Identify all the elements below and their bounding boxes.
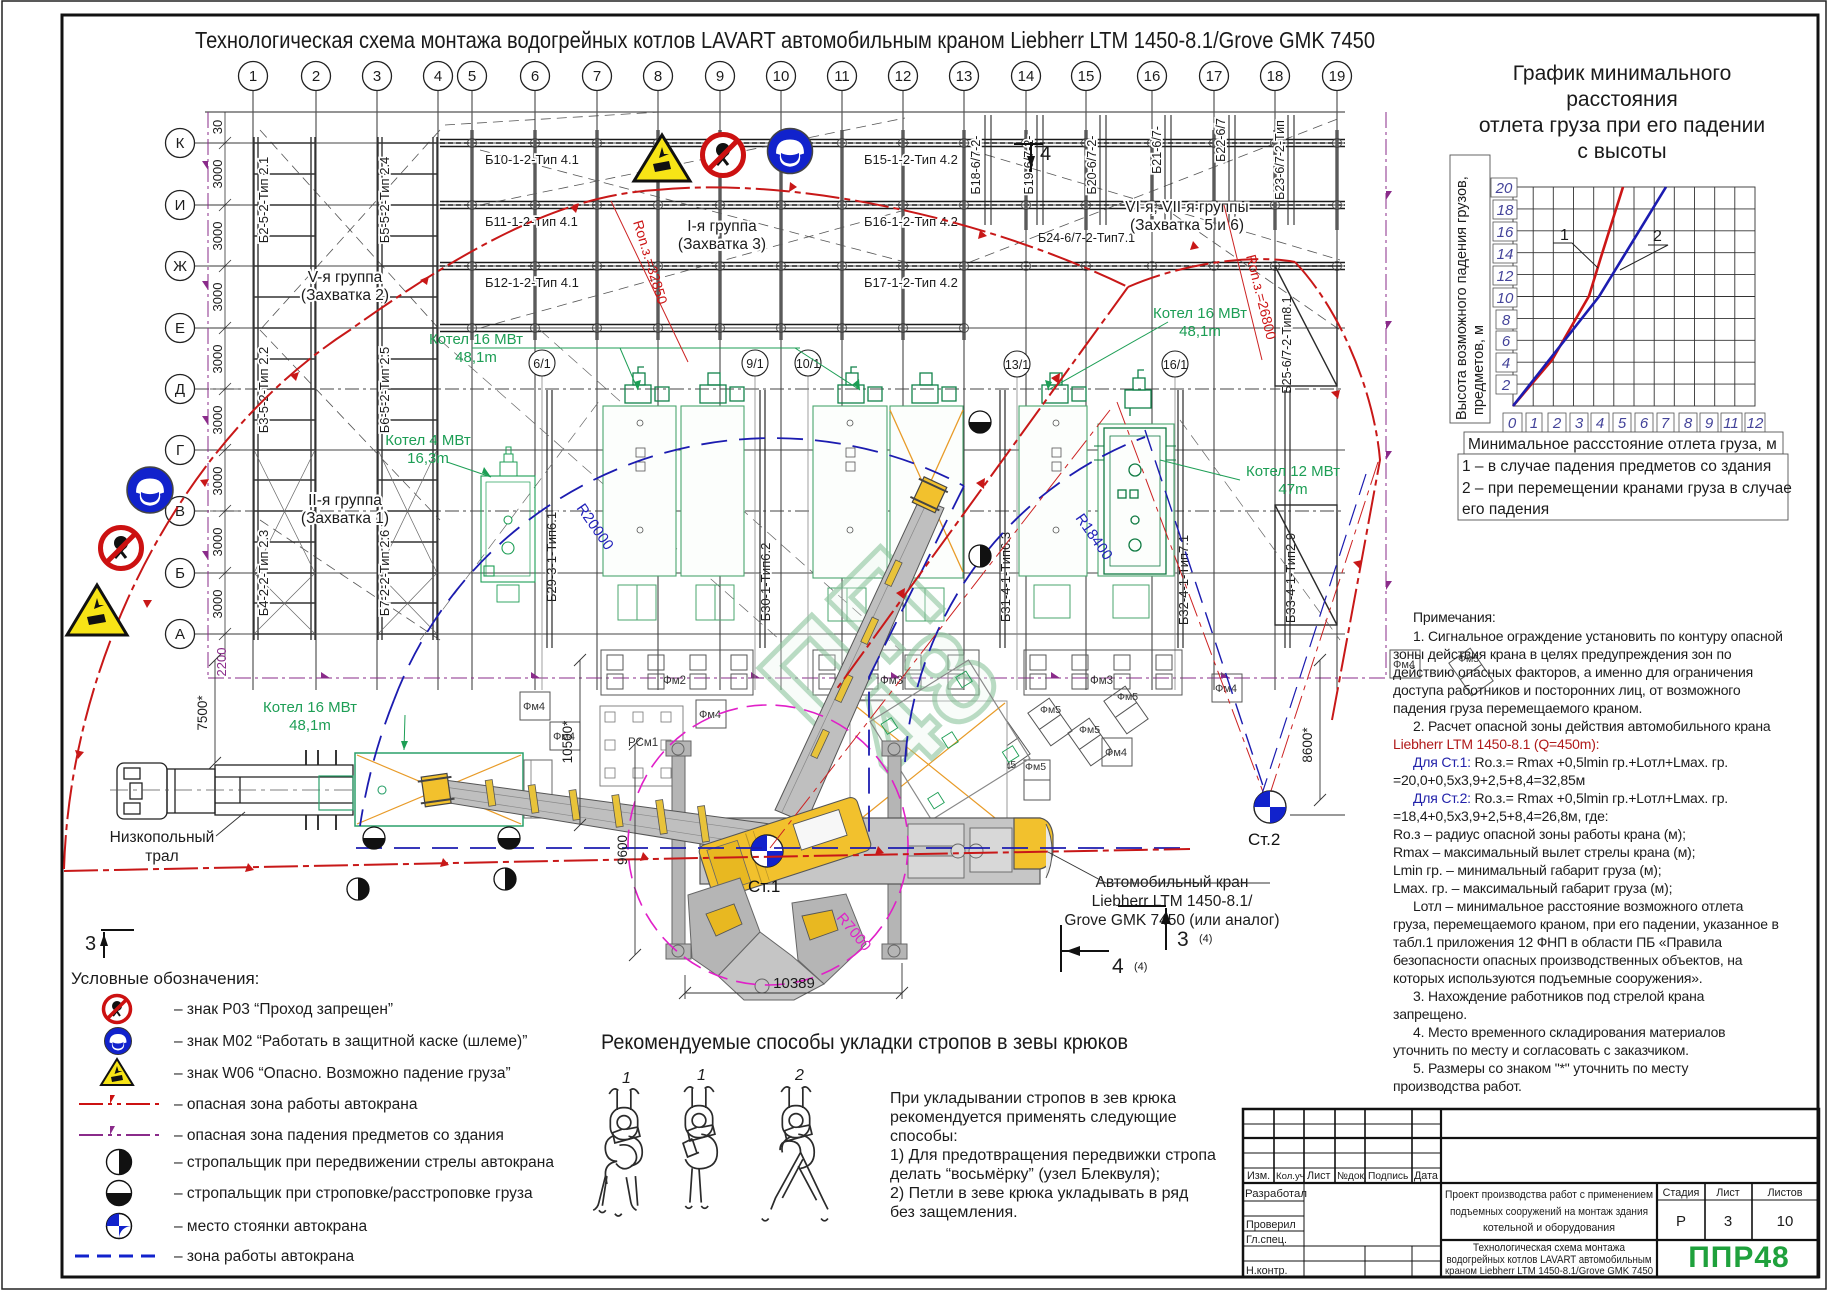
svg-text:Е: Е: [175, 320, 185, 337]
svg-text:Фм4: Фм4: [699, 709, 721, 721]
svg-text:Подпись: Подпись: [1368, 1171, 1408, 1182]
svg-text:2: 2: [312, 68, 320, 85]
svg-text:(Захватка 2): (Захватка 2): [301, 287, 389, 304]
svg-text:8: 8: [1684, 415, 1693, 432]
svg-text:10: 10: [1497, 290, 1514, 307]
svg-text:9: 9: [716, 68, 724, 85]
svg-text:11: 11: [834, 68, 850, 85]
svg-text:3000: 3000: [210, 222, 225, 251]
svg-text:производства работ.: производства работ.: [1393, 1078, 1522, 1094]
svg-text:Фм4: Фм4: [523, 701, 545, 713]
svg-text:3000: 3000: [210, 467, 225, 496]
svg-text:Р: Р: [1676, 1213, 1686, 1230]
svg-text:Б24-6/7-2-Тип7.1: Б24-6/7-2-Тип7.1: [1038, 231, 1135, 245]
svg-text:=20,0+0,5x3,9+2,5+8,4=32,85м: =20,0+0,5x3,9+2,5+8,4=32,85м: [1393, 772, 1585, 788]
svg-text:– зона работы автокрана: – зона работы автокрана: [174, 1248, 355, 1265]
svg-text:4: 4: [1596, 415, 1604, 432]
svg-text:II-я группа: II-я группа: [308, 492, 382, 509]
svg-text:10500*: 10500*: [560, 720, 575, 764]
svg-text:зоны действия крана в целях пр: зоны действия крана в целях предупрежден…: [1393, 646, 1732, 662]
svg-text:Liebherr LTM 1450-8.1 (Q=450m): Liebherr LTM 1450-8.1 (Q=450m):: [1393, 736, 1599, 752]
svg-text:Стадия: Стадия: [1663, 1187, 1700, 1199]
svg-text:2: 2: [1552, 415, 1562, 432]
svg-text:3: 3: [1177, 928, 1189, 951]
svg-text:(4): (4): [1199, 933, 1212, 945]
svg-text:Lмах. гр. – максимальный габар: Lмах. гр. – максимальный габарит груза (…: [1393, 880, 1672, 896]
svg-text:2200: 2200: [214, 648, 229, 677]
svg-text:14: 14: [1497, 246, 1514, 263]
svg-text:9: 9: [1705, 415, 1714, 432]
svg-text:Дата: Дата: [1414, 1170, 1438, 1182]
svg-text:8600*: 8600*: [1300, 727, 1315, 763]
svg-text:=18,4+0,5x3,9+2,5+8,4=26,8м, г: =18,4+0,5x3,9+2,5+8,4=26,8м, где:: [1393, 808, 1608, 824]
svg-text:0: 0: [1508, 415, 1517, 432]
svg-text:падения груза перемещаемого кр: падения груза перемещаемого краном.: [1393, 700, 1642, 716]
svg-text:Б23-6/7-2-Тип: Б23-6/7-2-Тип: [1273, 120, 1287, 200]
svg-text:VI-я, VII-я группы: VI-я, VII-я группы: [1125, 199, 1248, 216]
svg-text:3000: 3000: [210, 345, 225, 374]
svg-text:30: 30: [210, 120, 225, 134]
svg-text:4: 4: [1040, 143, 1051, 165]
svg-text:Фм5: Фм5: [1040, 704, 1061, 716]
svg-text:При укладывании стропов в зев: При укладывании стропов в зев крюка: [890, 1090, 1176, 1107]
svg-text:3: 3: [1724, 1213, 1732, 1230]
svg-text:Б25-6/7-2-Тип8.1: Б25-6/7-2-Тип8.1: [1280, 296, 1294, 393]
svg-text:10389: 10389: [773, 975, 815, 992]
svg-text:Б12-1-2-Тип 4.1: Б12-1-2-Тип 4.1: [485, 275, 579, 290]
svg-text:Н.контр.: Н.контр.: [1246, 1265, 1288, 1277]
svg-text:В: В: [175, 503, 185, 520]
svg-text:безопасности опасных производс: безопасности опасных производственных об…: [1393, 952, 1743, 968]
svg-text:Лист: Лист: [1307, 1170, 1331, 1182]
svg-text:6: 6: [1640, 415, 1649, 432]
svg-text:16: 16: [1144, 68, 1161, 85]
svg-text:Гл.спец.: Гл.спец.: [1246, 1234, 1287, 1246]
svg-text:2: 2: [1501, 377, 1511, 394]
svg-text:48,1m: 48,1m: [455, 349, 497, 366]
svg-text:12: 12: [1497, 268, 1514, 285]
svg-text:А: А: [175, 626, 185, 643]
svg-text:10/1: 10/1: [796, 357, 820, 371]
svg-text:табл.1 приложения 12 ФНП в обл: табл.1 приложения 12 ФНП в области ПБ «П…: [1393, 934, 1722, 950]
svg-text:16: 16: [1497, 224, 1514, 241]
svg-text:1: 1: [697, 1067, 706, 1084]
svg-text:К: К: [176, 135, 185, 152]
svg-text:1) Для предотвращения передвиж: 1) Для предотвращения передвижки стропа: [890, 1147, 1216, 1164]
svg-text:V-я группа: V-я группа: [308, 269, 383, 286]
svg-text:способы:: способы:: [890, 1128, 958, 1145]
svg-text:2: 2: [794, 1067, 804, 1084]
svg-text:которых используются подъемные: которых используются подъемные сооружени…: [1393, 970, 1703, 986]
svg-text:подъемных сооружений на монтаж: подъемных сооружений на монтаж здания: [1450, 1206, 1648, 1218]
svg-text:1. Сигнальное ограждение уста: 1. Сигнальное ограждение установить по к…: [1413, 628, 1783, 644]
svg-text:Для Ст.1: Ro.з.= Rmax +0,5lmin: Для Ст.1: Ro.з.= Rmax +0,5lmin гр.+Lотл+…: [1413, 754, 1728, 770]
svg-text:6/1: 6/1: [533, 357, 550, 371]
svg-text:1: 1: [1560, 227, 1569, 244]
svg-text:19: 19: [1329, 68, 1346, 85]
svg-text:уточнить по месту и согласоват: уточнить по месту и согласовать с заказч…: [1393, 1042, 1689, 1058]
svg-text:Б10-1-2-Тип 4.1: Б10-1-2-Тип 4.1: [485, 152, 579, 167]
svg-text:12: 12: [895, 68, 912, 85]
svg-text:3000: 3000: [210, 528, 225, 557]
svg-text:Условные обозначения:: Условные обозначения:: [71, 969, 259, 988]
svg-text:Ст.1: Ст.1: [748, 877, 780, 896]
svg-text:краном Liebherr LTM 1450-8.1/G: краном Liebherr LTM 1450-8.1/Grove GMK 7…: [1445, 1266, 1653, 1277]
svg-text:10: 10: [773, 68, 790, 85]
svg-text:13/1: 13/1: [1005, 358, 1029, 372]
svg-text:5: 5: [1618, 415, 1627, 432]
svg-text:Для Ст.2: Ro.з.= Rmax +0,5lmin: Для Ст.2: Ro.з.= Rmax +0,5lmin гр.+Lотл+…: [1413, 790, 1728, 806]
svg-text:– знак М02 “Работать в защитн: – знак М02 “Работать в защитной каске (ш…: [174, 1033, 527, 1050]
svg-text:запрещено.: запрещено.: [1393, 1006, 1467, 1022]
svg-text:1: 1: [1530, 415, 1538, 432]
svg-text:Фм5: Фм5: [1117, 691, 1138, 703]
svg-text:Котел 4 МВт: Котел 4 МВт: [385, 432, 471, 449]
svg-text:3. Нахождение работников под с: 3. Нахождение работников под стрелой кра…: [1413, 988, 1705, 1004]
svg-text:11: 11: [1723, 415, 1739, 432]
svg-text:2 – при перемещении кранами гр: 2 – при перемещении кранами груза в случ…: [1462, 480, 1792, 497]
svg-text:Котел 12 МВт: Котел 12 МВт: [1246, 463, 1340, 480]
svg-text:Изм.: Изм.: [1247, 1170, 1270, 1182]
svg-text:Минимальное рассстояние отлета: Минимальное рассстояние отлета груза, м: [1468, 436, 1777, 453]
svg-text:4. Место временного складирова: 4. Место временного складирования матери…: [1413, 1024, 1725, 1040]
svg-text:трал: трал: [145, 848, 178, 865]
svg-text:1: 1: [249, 68, 257, 85]
svg-text:График минимального: График минимального: [1513, 62, 1732, 85]
svg-text:1 – в случае падения предметов: 1 – в случае падения предметов со здания: [1462, 458, 1771, 475]
svg-text:№док.: №док.: [1337, 1171, 1367, 1182]
svg-text:делать “восьмёрку” (узел Блекв: делать “восьмёрку” (узел Блеквуля);: [890, 1166, 1160, 1183]
svg-text:15: 15: [1078, 68, 1095, 85]
svg-text:Б17-1-2-Тип 4.2: Б17-1-2-Тип 4.2: [864, 275, 958, 290]
svg-text:4: 4: [434, 68, 442, 85]
svg-text:расстояния: расстояния: [1566, 88, 1678, 111]
svg-text:Г: Г: [176, 442, 184, 459]
svg-text:13: 13: [956, 68, 973, 85]
svg-text:предметов, м: предметов, м: [1471, 325, 1487, 415]
svg-text:Фм5: Фм5: [1079, 724, 1100, 736]
svg-text:6: 6: [531, 68, 539, 85]
svg-text:(Захватка 5 и 6): (Захватка 5 и 6): [1130, 217, 1244, 234]
svg-text:48,1m: 48,1m: [289, 717, 331, 734]
svg-text:3: 3: [373, 68, 381, 85]
svg-text:– место стоянки автокрана: – место стоянки автокрана: [174, 1218, 367, 1235]
svg-text:Фм5: Фм5: [1025, 761, 1046, 773]
svg-text:Б18-6/7-2-: Б18-6/7-2-: [969, 136, 983, 195]
svg-text:3: 3: [85, 933, 96, 955]
svg-text:Низкопольный: Низкопольный: [110, 829, 215, 846]
svg-text:– стропальщик при передвижени: – стропальщик при передвижении стрелы ав…: [174, 1154, 554, 1171]
svg-text:7: 7: [1661, 415, 1670, 432]
svg-text:с высоты: с высоты: [1577, 140, 1666, 163]
svg-text:Б5-5-2-Тип 2.4: Б5-5-2-Тип 2.4: [377, 157, 392, 244]
svg-text:– знак Р03 “Проход запрещен”: – знак Р03 “Проход запрещен”: [174, 1001, 393, 1018]
svg-text:Ст.2: Ст.2: [1248, 830, 1280, 849]
svg-text:Фм2: Фм2: [663, 675, 686, 687]
svg-text:2: 2: [1653, 228, 1662, 245]
svg-text:Б22-6/7: Б22-6/7: [1214, 118, 1228, 162]
svg-text:I-я группа: I-я группа: [687, 218, 757, 235]
svg-text:2) Петли в зеве крюка укладыва: 2) Петли в зеве крюка укладывать в ряд: [890, 1185, 1189, 1202]
svg-text:48,1m: 48,1m: [1179, 323, 1221, 340]
svg-text:Б2-5-2-Тип 2.1: Б2-5-2-Тип 2.1: [256, 157, 271, 244]
svg-text:3000: 3000: [210, 160, 225, 189]
svg-text:Высота возможного падения груз: Высота возможного падения грузов,: [1454, 176, 1470, 420]
svg-text:доступа работников и посторонн: доступа работников и посторонних лиц, от…: [1393, 682, 1741, 698]
svg-text:– знак W06 “Опасно. Возможно: – знак W06 “Опасно. Возможно падение гру…: [174, 1065, 511, 1082]
svg-text:Котел 16 МВт: Котел 16 МВт: [1153, 305, 1247, 322]
svg-text:И: И: [175, 197, 186, 214]
svg-text:Фм3: Фм3: [1090, 675, 1113, 687]
svg-text:Б21-6/7-: Б21-6/7-: [1150, 126, 1164, 174]
svg-text:РСм1: РСм1: [628, 737, 658, 749]
svg-text:5. Размеры со знаком "*" уточн: 5. Размеры со знаком "*" уточнить по мес…: [1413, 1060, 1688, 1076]
svg-text:3000: 3000: [210, 406, 225, 435]
svg-text:17: 17: [1206, 68, 1223, 85]
svg-text:Технологическая схема монтажа: Технологическая схема монтажа: [1473, 1242, 1625, 1254]
svg-text:Проверил: Проверил: [1246, 1219, 1296, 1231]
svg-text:3: 3: [1575, 415, 1584, 432]
svg-text:– стропальщик при строповке/р: – стропальщик при строповке/расстроповке…: [174, 1185, 533, 1202]
svg-text:Б16-1-2-Тип 4.2: Б16-1-2-Тип 4.2: [864, 214, 958, 229]
svg-text:8: 8: [1502, 312, 1511, 329]
svg-text:Проект производства работ с пр: Проект производства работ с применением: [1445, 1189, 1653, 1201]
svg-text:Разработал: Разработал: [1245, 1188, 1307, 1200]
svg-text:Котел 16 МВт: Котел 16 МВт: [429, 331, 523, 348]
svg-text:Rmax – максимальный вылет стре: Rmax – максимальный вылет стрелы крана (…: [1393, 844, 1695, 860]
svg-text:Рекомендуемые способы укладки: Рекомендуемые способы укладки стропов в …: [601, 1031, 1128, 1054]
svg-text:Б15-1-2-Тип 4.2: Б15-1-2-Тип 4.2: [864, 152, 958, 167]
svg-text:Котел 16 МВт: Котел 16 МВт: [263, 699, 357, 716]
svg-text:16/1: 16/1: [1163, 358, 1187, 372]
svg-text:действию опасных факторов, а и: действию опасных факторов, а именно для …: [1393, 664, 1753, 680]
svg-text:7: 7: [593, 68, 601, 85]
svg-text:6: 6: [1502, 333, 1511, 350]
svg-text:18: 18: [1497, 202, 1514, 219]
svg-text:Б20-6/7-2-: Б20-6/7-2-: [1085, 136, 1099, 195]
svg-text:водогрейных котлов LAVART авто: водогрейных котлов LAVART автомобильным: [1447, 1254, 1652, 1266]
svg-text:9/1: 9/1: [746, 357, 763, 371]
svg-text:(4): (4): [1134, 961, 1147, 973]
svg-text:8: 8: [654, 68, 662, 85]
svg-text:3000: 3000: [210, 283, 225, 312]
svg-text:без защемления.: без защемления.: [890, 1204, 1018, 1221]
svg-text:– опасная зона падения предме: – опасная зона падения предметов со здан…: [174, 1127, 504, 1144]
svg-text:3000: 3000: [210, 590, 225, 619]
svg-text:5: 5: [468, 68, 476, 85]
svg-text:Б4-2-2-Тип 2.3: Б4-2-2-Тип 2.3: [256, 530, 271, 617]
svg-text:Автомобильный кран: Автомобильный кран: [1096, 874, 1249, 891]
svg-text:Примечания:: Примечания:: [1413, 609, 1496, 625]
svg-text:7500*: 7500*: [195, 695, 210, 731]
svg-text:Ж: Ж: [173, 258, 187, 275]
svg-text:Lотл – минимальное расстояние: Lотл – минимальное расстояние возможного…: [1413, 898, 1744, 914]
svg-text:18: 18: [1267, 68, 1284, 85]
svg-text:(Захватка 1): (Захватка 1): [301, 510, 389, 527]
svg-text:рекомендуется применять следую: рекомендуется применять следующие: [890, 1109, 1177, 1126]
svg-text:Б6-5-2-Тип 2.5: Б6-5-2-Тип 2.5: [377, 347, 392, 434]
svg-text:Ro.з – радиус опасной зоны раб: Ro.з – радиус опасной зоны работы крана …: [1393, 826, 1686, 842]
svg-text:Технологическая схема монтажа: Технологическая схема монтажа водогрейны…: [195, 27, 1375, 53]
svg-text:– опасная зона работы автокра: – опасная зона работы автокрана: [174, 1096, 418, 1113]
svg-text:Б: Б: [175, 565, 185, 582]
svg-text:котельной и оборудования: котельной и оборудования: [1483, 1222, 1615, 1234]
svg-text:1: 1: [622, 1070, 631, 1087]
svg-text:16,3m: 16,3m: [407, 450, 449, 467]
svg-text:Листов: Листов: [1767, 1187, 1802, 1199]
svg-text:Б3-5-2-Тип 2.2: Б3-5-2-Тип 2.2: [256, 347, 271, 434]
svg-text:10: 10: [1777, 1213, 1794, 1230]
svg-text:9600: 9600: [615, 835, 630, 865]
svg-text:Grove GMK 7450 (или аналог): Grove GMK 7450 (или аналог): [1064, 912, 1279, 929]
svg-text:47m: 47m: [1278, 481, 1307, 498]
svg-text:14: 14: [1018, 68, 1035, 85]
svg-text:Д: Д: [175, 381, 185, 398]
svg-text:4: 4: [1502, 355, 1510, 372]
svg-text:Кол.уч: Кол.уч: [1276, 1171, 1305, 1182]
svg-text:ППР48: ППР48: [1688, 1241, 1790, 1274]
svg-text:20: 20: [1495, 180, 1513, 197]
svg-text:груза, перемещаемого краном, п: груза, перемещаемого краном, при его пад…: [1393, 916, 1779, 932]
svg-text:12: 12: [1747, 415, 1764, 432]
svg-text:2. Расчет опасной зоны действи: 2. Расчет опасной зоны действия автомоби…: [1413, 718, 1771, 734]
svg-text:Liebherr LTM 1450-8.1/: Liebherr LTM 1450-8.1/: [1092, 893, 1254, 910]
svg-text:его падения: его падения: [1462, 501, 1549, 518]
svg-text:Б7-2-2-Тип 2.6: Б7-2-2-Тип 2.6: [377, 530, 392, 617]
svg-text:4: 4: [1112, 955, 1124, 978]
svg-text:Lmin гр. – минимальный габарит: Lmin гр. – минимальный габарит груза (м)…: [1393, 862, 1661, 878]
svg-text:Лист: Лист: [1716, 1187, 1740, 1199]
svg-text:(Захватка 3): (Захватка 3): [678, 236, 766, 253]
svg-text:отлета груза при его падении: отлета груза при его падении: [1479, 114, 1765, 137]
